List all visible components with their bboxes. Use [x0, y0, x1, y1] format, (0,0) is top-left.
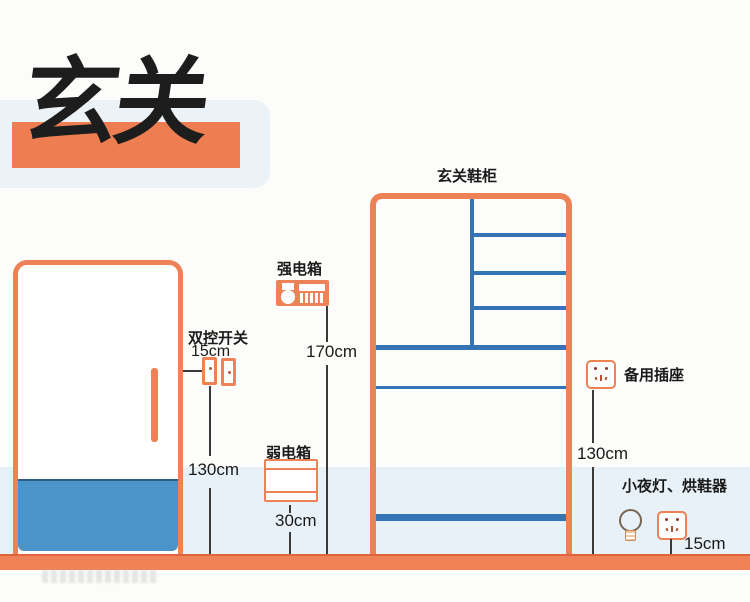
hallway-layout-diagram: 玄关 双控开关 15cm 130cm 强电箱 170cm 弱电箱 30cm 玄关… [0, 0, 750, 602]
switch-dot [228, 371, 231, 374]
cabinet-bottom-shelf [376, 514, 566, 521]
socket-hole [676, 528, 679, 532]
strong-electric-box-icon [276, 280, 329, 306]
switch-icon [221, 358, 236, 386]
cabinet-shelf [470, 233, 566, 237]
switch-connector-line [183, 370, 202, 372]
night-light-label: 小夜灯、烘鞋器 [622, 475, 727, 496]
switch-dim-line-top [209, 386, 211, 456]
weak-box-dim-line-bottom [289, 532, 291, 554]
night-light-height-label: 15cm [684, 534, 726, 554]
strong-box-height-label: 170cm [306, 342, 357, 362]
weak-box-height-label: 30cm [275, 511, 317, 531]
switch-dot [209, 367, 212, 370]
bulb-icon [619, 509, 642, 532]
strong-box-bar [299, 284, 325, 291]
switch-dim-line-bottom [209, 488, 211, 554]
cabinet-shelf [376, 345, 566, 350]
socket-hole [595, 377, 598, 381]
socket-hole [594, 367, 597, 370]
socket-hole [666, 528, 669, 532]
door-bottom-panel [18, 479, 178, 551]
spare-socket-dim-line-bottom [592, 467, 594, 554]
socket-hole [676, 518, 679, 521]
spare-socket-height-label: 130cm [577, 444, 628, 464]
socket-hole [600, 375, 602, 381]
cabinet-shelf [376, 386, 566, 389]
socket-hole [665, 518, 668, 521]
cabinet-shelf [470, 306, 566, 310]
switch-icon [202, 357, 217, 385]
door-handle-icon [151, 368, 158, 442]
cabinet-shelf [470, 271, 566, 275]
socket-hole [605, 377, 608, 381]
strong-box-dim-line-bottom [326, 365, 328, 554]
spare-socket-icon [586, 360, 616, 389]
spare-socket-dim-line-top [592, 390, 594, 443]
strong-box-breakers [300, 293, 325, 303]
watermark [42, 570, 157, 583]
spare-socket-label: 备用插座 [624, 364, 684, 385]
page-title: 玄关 [17, 52, 261, 155]
strong-box-dim-line-top [326, 306, 328, 342]
socket-hole [605, 367, 608, 370]
strong-box-label: 强电箱 [277, 258, 322, 279]
socket-hole [671, 526, 673, 532]
cabinet-label: 玄关鞋柜 [437, 165, 497, 186]
entry-door [13, 260, 183, 554]
shoe-dryer-socket-icon [657, 511, 687, 540]
weak-electric-box-icon [264, 459, 318, 502]
weak-box-lid-line [265, 468, 317, 470]
weak-box-base-line [265, 491, 317, 493]
switch-height-label: 130cm [188, 460, 239, 480]
strong-box-dial [281, 290, 295, 304]
floor [0, 554, 750, 570]
bulb-base-icon [625, 530, 636, 541]
strong-box-window [282, 283, 294, 290]
night-light-dim-line [670, 539, 672, 554]
shoe-cabinet [370, 193, 572, 554]
